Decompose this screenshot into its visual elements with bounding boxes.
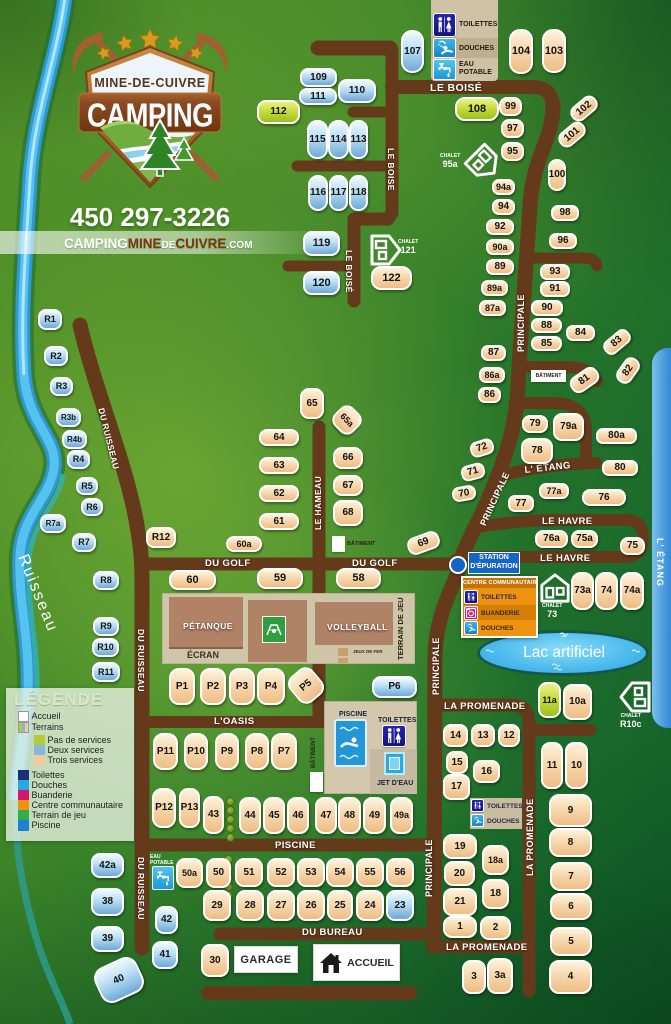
svg-text:MINE-DE-CUIVRE: MINE-DE-CUIVRE (94, 76, 205, 90)
